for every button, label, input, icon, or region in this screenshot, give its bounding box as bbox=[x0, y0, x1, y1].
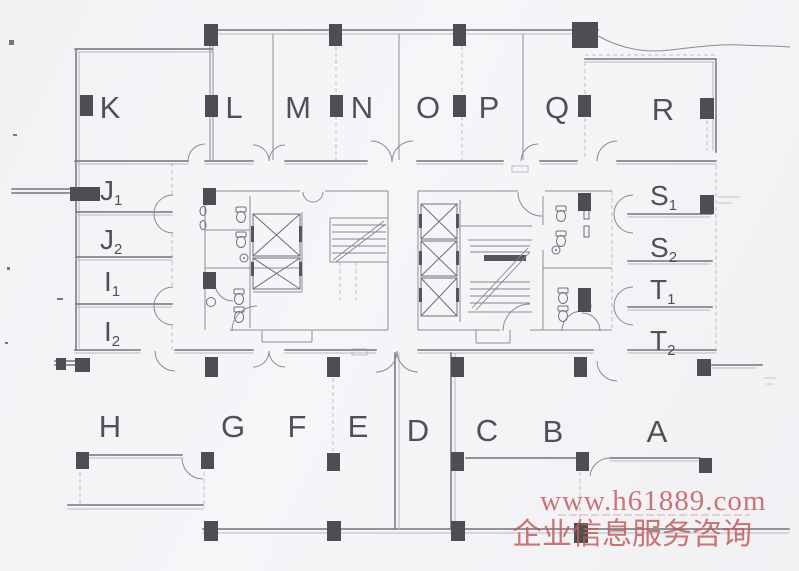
stair-treads bbox=[470, 246, 530, 303]
stair-landing-dashes bbox=[340, 262, 356, 300]
right-room-partitions bbox=[628, 214, 762, 365]
room-label-S1: S1 bbox=[650, 180, 677, 214]
toilet-icon bbox=[236, 207, 246, 223]
room-label-J2: J2 bbox=[100, 224, 122, 258]
room-label-I2: I2 bbox=[104, 316, 120, 350]
room-label-M: M bbox=[285, 90, 311, 125]
watermark-url-text: www.h61889.com bbox=[540, 485, 766, 517]
toilet-icon bbox=[234, 289, 244, 305]
room-label-F: F bbox=[288, 409, 307, 444]
room-label-K: K bbox=[100, 90, 121, 125]
room-label-I1: I1 bbox=[104, 266, 120, 300]
scan-specks bbox=[5, 40, 63, 344]
room-label-D: D bbox=[407, 413, 429, 448]
stair-diagonals bbox=[333, 221, 386, 262]
toilet-icon bbox=[234, 307, 244, 323]
elevator-x-marks bbox=[253, 204, 457, 316]
room-label-O: O bbox=[416, 90, 440, 125]
watermark-caption-text: 企业信息服务咨询 bbox=[512, 518, 752, 551]
room-label-R: R bbox=[652, 92, 674, 127]
left-room-partitions-inner bbox=[76, 215, 172, 307]
room-label-H: H bbox=[99, 409, 121, 444]
restroom-fixtures bbox=[200, 206, 591, 323]
corridor-wall bbox=[75, 161, 716, 350]
urinal-bracket-icons bbox=[584, 208, 589, 237]
room-label-N: N bbox=[351, 90, 373, 125]
tiny-annotation-ticks bbox=[718, 197, 776, 384]
toilet-icon bbox=[236, 232, 246, 248]
structural-column-markers bbox=[56, 22, 714, 543]
drain-center-dot bbox=[555, 249, 557, 251]
room-label-Q: Q bbox=[545, 90, 569, 125]
toilet-icon bbox=[558, 288, 568, 304]
right-room-partitions-inner bbox=[628, 217, 755, 368]
room-label-T2: T2 bbox=[650, 325, 675, 359]
room-label-T1: T1 bbox=[650, 274, 675, 308]
floor-drain-icon bbox=[207, 298, 216, 307]
room-label-C: C bbox=[476, 413, 498, 448]
toilet-icon bbox=[556, 206, 566, 222]
room-label-P: P bbox=[479, 90, 500, 125]
elevator-bank bbox=[251, 204, 459, 316]
scanned-floor-plan: K L M N O P Q R H G F E D C B A J1 J2 I1… bbox=[0, 0, 799, 571]
watermark: www.h61889.com 企业信息服务咨询 bbox=[512, 485, 766, 551]
room-label-J1: J1 bbox=[100, 175, 122, 209]
service-core bbox=[200, 191, 612, 343]
room-label-G: G bbox=[221, 409, 245, 444]
sketch-wavy-line bbox=[598, 36, 790, 51]
floor-plan-drawing: K L M N O P Q R H G F E D C B A J1 J2 I1… bbox=[0, 0, 799, 571]
room-label-L: L bbox=[225, 90, 242, 125]
toilet-icon bbox=[556, 231, 566, 247]
room-label-S2: S2 bbox=[650, 232, 677, 266]
drain-center-dot bbox=[243, 257, 245, 259]
door-threshold bbox=[512, 166, 528, 172]
room-label-E: E bbox=[348, 409, 369, 444]
staircase-right-icon bbox=[470, 246, 530, 310]
stair-mid-landing bbox=[484, 255, 526, 261]
room-label-A: A bbox=[647, 414, 668, 449]
stair-treads bbox=[332, 225, 386, 253]
toilet-icon bbox=[558, 306, 568, 322]
staircase-left-icon bbox=[332, 221, 386, 300]
room-labels: K L M N O P Q R H G F E D C B A bbox=[99, 90, 674, 449]
room-label-B: B bbox=[543, 414, 564, 449]
